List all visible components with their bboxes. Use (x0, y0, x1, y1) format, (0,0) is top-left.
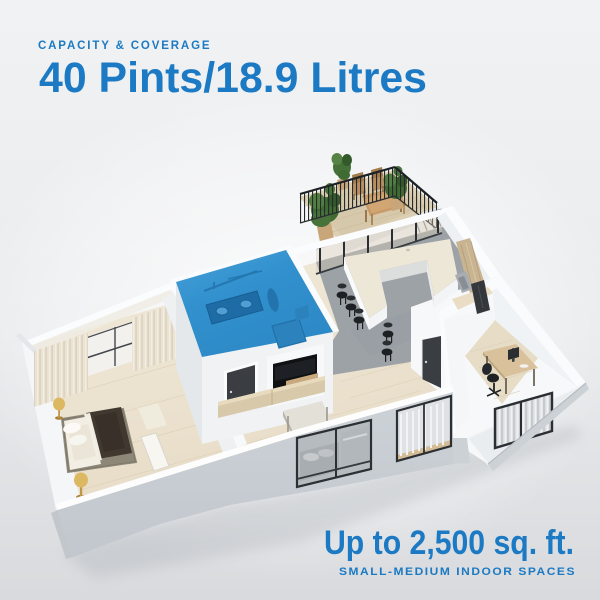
svg-text:CAPACITY & COVERAGE: CAPACITY & COVERAGE (38, 40, 211, 52)
svg-text:Up to 2,500 sq. ft.: Up to 2,500 sq. ft. (324, 524, 574, 562)
svg-text:SMALL-MEDIUM INDOOR SPACES: SMALL-MEDIUM INDOOR SPACES (339, 566, 576, 578)
svg-text:40 Pints/18.9 Litres: 40 Pints/18.9 Litres (39, 54, 427, 102)
